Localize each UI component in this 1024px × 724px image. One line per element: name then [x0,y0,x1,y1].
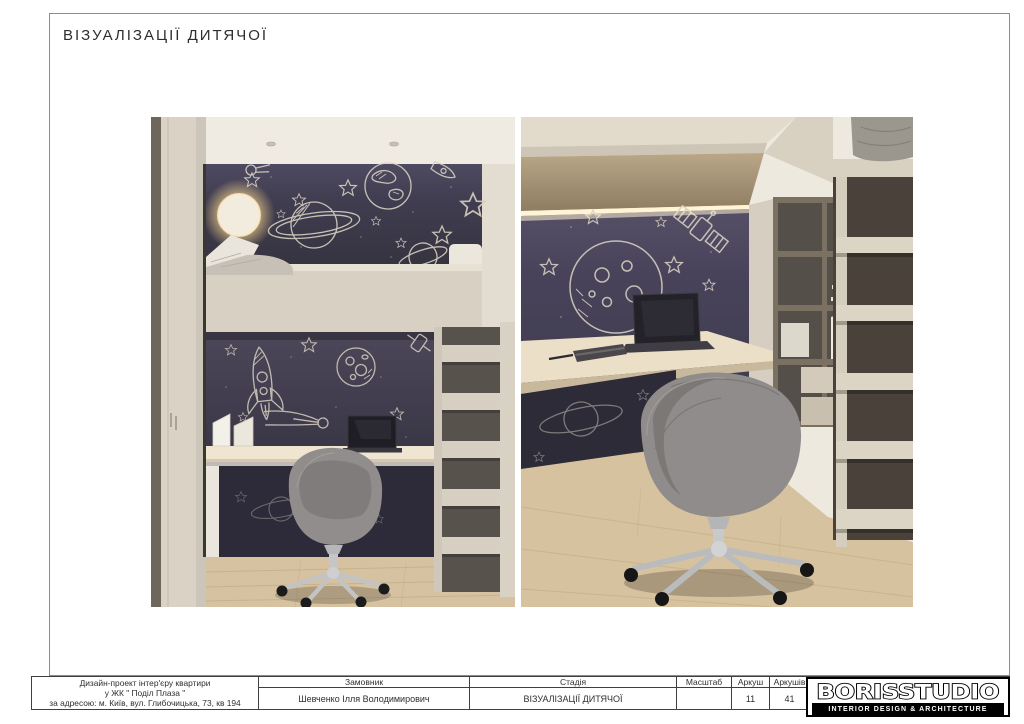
scale-value [677,688,731,709]
sheet-number-cell: Аркуш 11 [731,677,769,709]
project-line-3: за адресою: м. Київ, вул. Глибочицька, 7… [49,698,240,708]
client-value: Шевченко Ілля Володимирович [259,688,469,709]
render-left-illustration [151,117,515,607]
client-label: Замовник [259,677,469,688]
project-description-cell: Дизайн-проект інтер'єру квартири у ЖК " … [32,677,258,709]
render-left-loft-bed [151,117,515,607]
stage-cell: Стадія ВІЗУАЛІЗАЦІЇ ДИТЯЧОЇ [469,677,676,709]
studio-logo: BORISSTUDIO INTERIOR DESIGN & ARCHITECTU… [806,677,1010,717]
logo-text: BORISSTUDIO [817,680,1000,703]
logo-tagline: INTERIOR DESIGN & ARCHITECTURE [812,703,1004,715]
wardrobe [151,117,206,607]
scale-cell: Масштаб [676,677,731,709]
bed-ladder-shelf [434,322,515,597]
design-sheet: ВІЗУАЛІЗАЦІЇ ДИТЯЧОЇ [0,0,1024,724]
blanket [851,117,913,161]
sheets-total-cell: Аркушів 41 [769,677,809,709]
scale-label: Масштаб [677,677,731,688]
sheets-label: Аркушів [770,677,809,688]
sheets-value: 41 [770,688,809,709]
bed-ladder-shelf [833,117,913,547]
sheet-value: 11 [732,688,769,709]
page-frame: ВІЗУАЛІЗАЦІЇ ДИТЯЧОЇ [49,13,1010,676]
render-right-illustration [521,117,913,607]
stage-label: Стадія [470,677,676,688]
logo-wordmark: BORISSTUDIO [810,680,1006,703]
stage-value: ВІЗУАЛІЗАЦІЇ ДИТЯЧОЇ [470,688,676,709]
project-line-1: Дизайн-проект інтер'єру квартири [80,678,211,688]
page-title: ВІЗУАЛІЗАЦІЇ ДИТЯЧОЇ [63,27,268,44]
client-cell: Замовник Шевченко Ілля Володимирович [258,677,469,709]
sheet-label: Аркуш [732,677,769,688]
render-right-desk-closeup [521,117,913,607]
project-line-2: у ЖК " Поділ Плаза " [105,688,185,698]
